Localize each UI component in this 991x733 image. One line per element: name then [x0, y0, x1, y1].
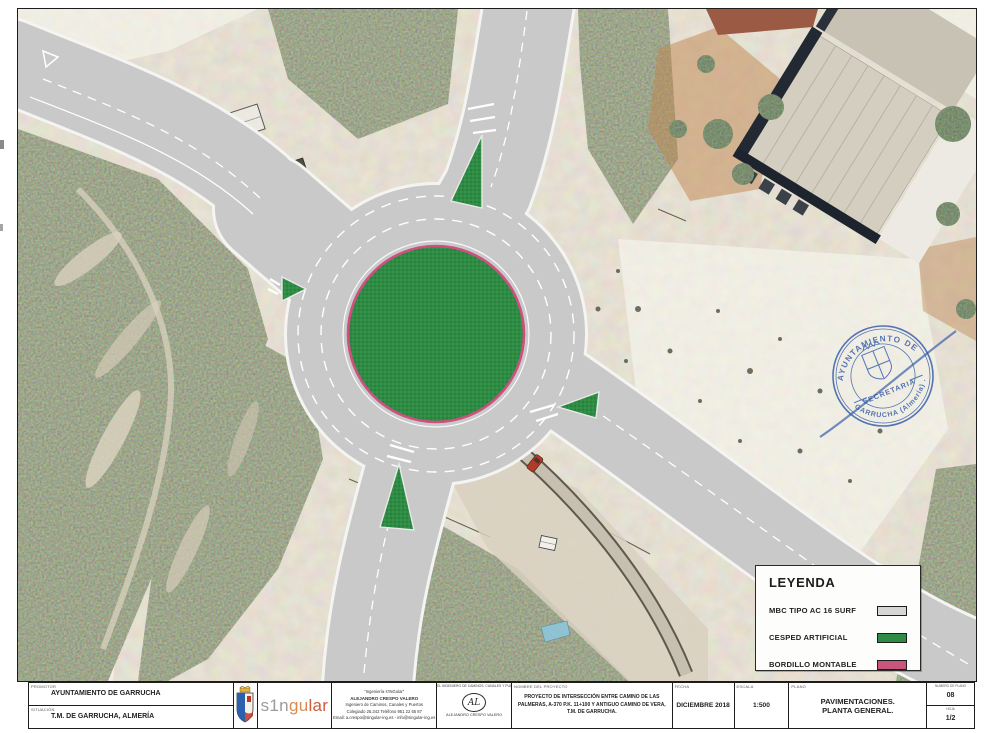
date-label: FECHA — [675, 684, 690, 689]
signature-cell: EL INGENIERO DE CAMINOS, CANALES Y PUERT… — [437, 683, 512, 728]
promotor-value: AYUNTAMIENTO DE GARRUCHA — [51, 690, 161, 697]
plan-number-row: NUMERO DE PLANO 08 — [927, 683, 974, 706]
project-title-cell: NOMBRE DEL PROYECTO PROYECTO DE INTERSEC… — [512, 683, 673, 728]
promotor-row: PROMOTOR AYUNTAMIENTO DE GARRUCHA — [29, 683, 233, 706]
engineer-email: Email: a.crespo@singular-ing.es - info@s… — [332, 715, 436, 722]
coat-of-arms-cell — [234, 683, 258, 728]
legend-box: LEYENDA MBC TIPO AC 16 SURF CESPED ARTIF… — [755, 565, 921, 671]
sheet-title-line: PLANTA GENERAL. — [789, 706, 926, 715]
sheet-of-row: HOJA 1/2 — [927, 706, 974, 728]
scale-value: 1:500 — [735, 702, 789, 709]
legend-item: MBC TIPO AC 16 SURF — [769, 597, 907, 624]
sheet-of-value: 1/2 — [946, 715, 956, 722]
project-title-line: PROYECTO DE INTERSECCIÓN ENTRE CAMINO DE… — [512, 694, 672, 702]
scale-label: ESCALA — [737, 684, 754, 689]
signature-header: EL INGENIERO DE CAMINOS, CANALES Y PUERT… — [437, 684, 511, 688]
legend-item-label: CESPED ARTIFICIAL — [769, 633, 848, 642]
sheet-title-line: PAVIMENTACIONES. — [789, 697, 926, 706]
consultant-logo-cell: s1ngular — [258, 683, 333, 728]
project-title-line: T.M. DE GARRUCHA. — [512, 709, 672, 717]
legend-title: LEYENDA — [769, 575, 920, 590]
scale-cell: ESCALA 1:500 — [735, 683, 790, 728]
legend-swatch-asphalt — [877, 606, 907, 616]
sheet-title-cell: PLANO PAVIMENTACIONES. PLANTA GENERAL. — [789, 683, 927, 728]
roundabout-island — [348, 246, 524, 422]
sheet-number-cell: NUMERO DE PLANO 08 HOJA 1/2 — [927, 683, 974, 728]
legend-item-label: MBC TIPO AC 16 SURF — [769, 606, 856, 615]
date-value: DICIEMBRE 2018 — [673, 702, 734, 709]
situacion-label: SITUACIÓN — [31, 707, 55, 712]
legend-swatch-turf — [877, 633, 907, 643]
sheet-of-label: HOJA — [927, 707, 974, 711]
legend-item: CESPED ARTIFICIAL — [769, 624, 907, 651]
situacion-row: SITUACIÓN T.M. DE GARRUCHA, ALMERÍA — [29, 706, 233, 729]
engineer-info-cell: "Ingeniería s'INGular" ALEJANDRO CRESPO … — [332, 683, 437, 728]
legend-swatch-kerb — [877, 660, 907, 670]
legend-item-label: BORDILLO MONTABLE — [769, 660, 857, 669]
signature-monogram: AL — [462, 693, 486, 712]
scan-artifact — [0, 224, 3, 231]
signature-name: ALEJANDRO CRESPO VALERO — [437, 713, 511, 717]
sheet-title-label: PLANO — [791, 684, 806, 689]
situacion-value: T.M. DE GARRUCHA, ALMERÍA — [51, 713, 154, 720]
project-title-line: PALMERAS, A-370 P.K. 11+100 Y ANTIGUO CA… — [512, 702, 672, 710]
garrucha-coat-of-arms-icon — [235, 686, 255, 726]
engineer-name: ALEJANDRO CRESPO VALERO — [332, 696, 436, 703]
date-cell: FECHA DICIEMBRE 2018 — [673, 683, 735, 728]
plan-number-value: 08 — [947, 692, 955, 699]
plan-number-label: NUMERO DE PLANO — [927, 684, 974, 688]
legend-item: BORDILLO MONTABLE — [769, 651, 907, 678]
title-block-owner-cell: PROMOTOR AYUNTAMIENTO DE GARRUCHA SITUAC… — [29, 683, 234, 728]
title-block: PROMOTOR AYUNTAMIENTO DE GARRUCHA SITUAC… — [28, 682, 975, 729]
scanned-plan-page: { "sheet": { "palette": { "asphalt": "#c… — [0, 0, 991, 733]
scan-artifact — [0, 140, 4, 149]
promotor-label: PROMOTOR — [31, 684, 56, 689]
singular-logo: s1ngular — [261, 696, 329, 716]
project-label: NOMBRE DEL PROYECTO — [514, 684, 568, 689]
